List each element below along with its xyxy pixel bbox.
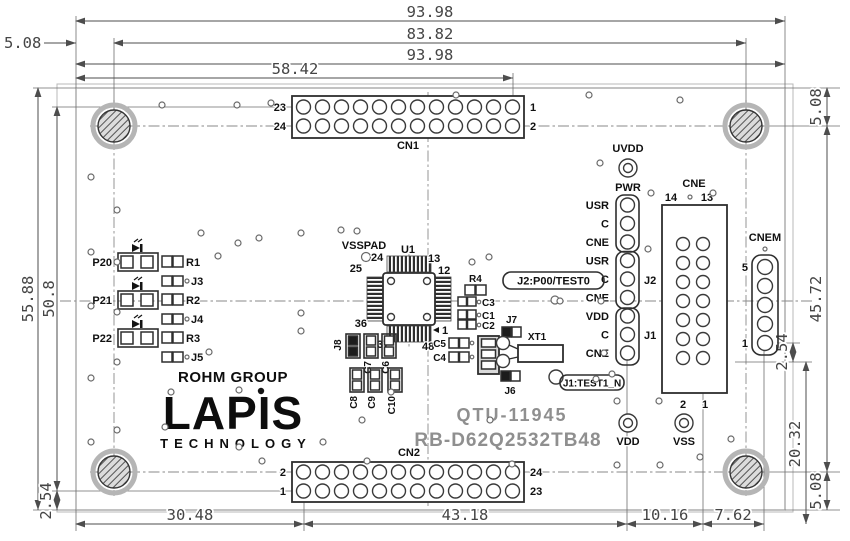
dim-right-bottom-offset: 5.08 (807, 472, 825, 509)
dim-right-top-offset: 5.08 (807, 88, 825, 125)
via-dot (88, 375, 94, 381)
connector-cn1: 23 24 1 2 CN1 (274, 96, 536, 152)
vss-label: VSS (673, 436, 695, 448)
pwr-pins (621, 198, 635, 360)
pin-circle (758, 260, 773, 275)
via-dot (268, 100, 274, 106)
dim-left-pitch: 2.54 (37, 482, 55, 519)
pin-circle (430, 484, 444, 498)
via-dot (710, 190, 716, 196)
pin-circle (297, 484, 311, 498)
pin-circle (621, 309, 635, 323)
u1-pin1-label: 1 (442, 325, 448, 337)
pin-circle (316, 100, 330, 114)
via-dot (320, 439, 326, 445)
via-dot (162, 424, 168, 430)
jumper-row-j4: J4 (162, 314, 204, 326)
via-dot (256, 235, 262, 241)
j8-label: J8 (333, 339, 344, 351)
cne-pin14-label: 14 (665, 192, 678, 204)
u1-pin12-label: 12 (438, 265, 450, 277)
dim-bottom-0: 30.48 (167, 506, 214, 524)
pin-circle (354, 119, 368, 133)
pin-circle (449, 100, 463, 114)
lapis-i-dot (258, 388, 264, 394)
pin-circle (411, 100, 425, 114)
pin-circle (335, 465, 349, 479)
u1-pins-top (387, 256, 431, 272)
led-row-p22: P22 R3 (92, 315, 200, 347)
pin-circle (392, 484, 406, 498)
cne-pin2-label: 2 (680, 399, 686, 411)
pin-circle (468, 100, 482, 114)
led-p20-label: P20 (92, 257, 112, 269)
led-resistor-block: P20 R1 J3 P21 R2 J4 P22 (92, 239, 204, 364)
led-p21-label: P21 (92, 295, 112, 307)
c2-label: C2 (482, 321, 495, 332)
u1-vsspad-label: VSSPAD (342, 240, 386, 252)
via-dot (114, 207, 120, 213)
pin-circle (392, 119, 406, 133)
via-dot (236, 444, 242, 450)
pin-circle (677, 295, 690, 308)
via-dot (469, 259, 475, 265)
pin-circle (677, 238, 690, 251)
via-dot (88, 439, 94, 445)
pin-circle (621, 346, 635, 360)
pin-circle (677, 276, 690, 289)
led-row-p20: P20 R1 (92, 239, 200, 271)
pin-circle (487, 484, 501, 498)
resistor-r2-label: R2 (186, 295, 200, 307)
via-dot (677, 97, 683, 103)
cn2-pin1-label: 1 (280, 486, 286, 498)
pin-circle (392, 100, 406, 114)
via-dot (215, 253, 221, 259)
cn1-pin23-label: 23 (274, 102, 286, 114)
via-dot (114, 259, 120, 265)
xt1-body (518, 345, 563, 362)
cne-refdes: CNE (682, 178, 705, 190)
dim-top-left-offset: 5.08 (4, 34, 41, 52)
board-model-text: QTU-11945 (456, 405, 567, 425)
pin-circle (621, 198, 635, 212)
connector-cn2: 2 1 24 23 CN2 (280, 447, 543, 502)
cn1-pin24-label: 24 (274, 121, 287, 133)
pin-circle (468, 465, 482, 479)
pin-circle (621, 235, 635, 249)
j2-callout-text: J2:P00/TEST0 (517, 276, 590, 288)
via-dot (697, 454, 703, 460)
dim-bottom-3: 7.62 (714, 506, 751, 524)
via-dot (648, 190, 654, 196)
pin-circle (758, 298, 773, 313)
pin-circle (487, 465, 501, 479)
pin-circle (335, 100, 349, 114)
j1-callout-text: J1:TEST1_N (563, 379, 621, 390)
u1-pins-right (435, 277, 451, 321)
dim-top-holes: 83.82 (407, 25, 454, 43)
via-dot (206, 349, 212, 355)
pin-circle (758, 279, 773, 294)
lapis-logo: LAPIS (163, 387, 303, 439)
cn2-pin24-label: 24 (530, 467, 543, 479)
via-dot (114, 309, 120, 315)
board-name-text: RB-D62Q2532TB48 (414, 430, 601, 451)
resistor-r3-label: R3 (186, 333, 200, 345)
testpad (549, 370, 563, 384)
u1-pin13-label: 13 (428, 253, 440, 265)
pcb-dimension-drawing: 93.98 5.08 83.82 93.98 58.42 30.48 43.18… (0, 0, 850, 541)
pin-circle (392, 465, 406, 479)
silkscreen-titles: QTU-11945 RB-D62Q2532TB48 (414, 405, 601, 451)
pin-circle (697, 238, 710, 251)
jumper-row-j5: J5 (162, 352, 203, 364)
pin-circle (316, 465, 330, 479)
pin-circle (354, 465, 368, 479)
c10-label: C10 (387, 396, 398, 415)
via-dot (557, 298, 563, 304)
pin-circle (677, 333, 690, 346)
c4-label: C4 (433, 353, 446, 364)
pin-circle (430, 119, 444, 133)
via-dot (359, 417, 365, 423)
via-dot (388, 389, 394, 395)
pin-circle (758, 336, 773, 351)
via-dot (198, 230, 204, 236)
jumper-row-j3: J3 (162, 276, 203, 288)
via-dot (453, 92, 459, 98)
cn1-pin2-label: 2 (530, 121, 536, 133)
pin-circle (449, 119, 463, 133)
cne-pin1-label: 1 (702, 399, 708, 411)
via-dot (88, 174, 94, 180)
pin-circle (697, 295, 710, 308)
cnem-pin5-label: 5 (742, 262, 748, 274)
pin-circle (373, 465, 387, 479)
xt1-label: XT1 (528, 332, 547, 343)
pin-circle (621, 291, 635, 305)
u1-pin25-label: 25 (350, 263, 362, 275)
j1-refdes: J1 (644, 330, 656, 342)
mounting-hole-bottom-left (93, 451, 135, 493)
jumper-j4-label: J4 (191, 314, 204, 326)
via-dot (168, 389, 174, 395)
cn2-pin23-label: 23 (530, 486, 542, 498)
pin-circle (468, 484, 482, 498)
via-dot (88, 249, 94, 255)
cn1-pin1-label: 1 (530, 102, 536, 114)
connector-cne: CNE 14 13 2 1 (662, 178, 727, 411)
dim-top-full-2: 93.98 (407, 46, 454, 64)
dim-right-cne-span: 20.32 (786, 421, 804, 468)
j2-refdes: J2 (644, 275, 656, 287)
pin-circle (373, 119, 387, 133)
pin-circle (354, 100, 368, 114)
pin-circle (677, 352, 690, 365)
mounting-hole-bottom-right (725, 451, 767, 493)
pwr-pin-label-1-usr: USR (586, 200, 609, 212)
jumper-j3-label: J3 (191, 276, 203, 288)
via-dot (234, 102, 240, 108)
led-row-p21: P21 R2 (92, 277, 200, 309)
via-dot (586, 92, 592, 98)
pin-circle (697, 276, 710, 289)
u1-pins-left (367, 277, 383, 321)
drawing-canvas: 93.98 5.08 83.82 93.98 58.42 30.48 43.18… (0, 0, 850, 541)
pin-circle (373, 484, 387, 498)
pin-circle (677, 314, 690, 327)
pin-circle (354, 484, 368, 498)
dim-bottom-1: 43.18 (442, 506, 489, 524)
via-dot (487, 417, 493, 423)
via-dot (236, 387, 242, 393)
dim-right-holes-span: 45.72 (807, 276, 825, 323)
r4-label: R4 (469, 274, 482, 285)
cn2-pin2-label: 2 (280, 467, 286, 479)
pwr-pin-label-7-vdd: VDD (586, 311, 609, 323)
via-dot (645, 246, 651, 252)
pin-circle (411, 465, 425, 479)
pin-circle (621, 254, 635, 268)
pin-circle (430, 465, 444, 479)
pin-circle (316, 119, 330, 133)
pwr-pin-label-3-cne: CNE (586, 237, 609, 249)
led-p22-label: P22 (92, 333, 112, 345)
pin-circle (697, 314, 710, 327)
via-dot (598, 298, 604, 304)
dim-top-cn1: 58.42 (272, 60, 319, 78)
c9-label: C9 (367, 396, 378, 409)
via-dot (259, 458, 265, 464)
pwr-pin-label-6-cne: CNE (586, 293, 609, 305)
u1-refdes: U1 (401, 244, 415, 256)
uvdd-label: UVDD (612, 143, 643, 155)
pin-circle (506, 484, 520, 498)
via-dot (614, 462, 620, 468)
dim-left-height: 55.88 (19, 276, 37, 323)
c8-label: C8 (349, 396, 360, 409)
xt1-pad-1 (497, 337, 510, 350)
pin-circle (621, 272, 635, 286)
cn1-refdes: CN1 (397, 140, 419, 152)
cnem-pins (758, 260, 773, 351)
via-dot (159, 102, 165, 108)
led-symbol (132, 320, 140, 328)
resistor-r1-label: R1 (186, 257, 200, 269)
via-dot (597, 160, 603, 166)
c3-label: C3 (482, 298, 495, 309)
led-symbol (132, 244, 140, 252)
pin-circle (297, 119, 311, 133)
pin-circle (297, 100, 311, 114)
via-dot (338, 227, 344, 233)
u1-pin1-arrow (433, 327, 439, 333)
via-dot (364, 458, 370, 464)
via-dot (88, 303, 94, 309)
u1-pin24-label: 24 (371, 252, 384, 264)
via-dot (509, 461, 515, 467)
pin-circle (487, 100, 501, 114)
pin-circle (468, 119, 482, 133)
dim-bottom-2: 10.16 (642, 506, 689, 524)
u1-vsspad-via (362, 253, 371, 262)
pin-circle (411, 484, 425, 498)
pin-circle (621, 328, 635, 342)
via-dot (298, 328, 304, 334)
via-dot (298, 230, 304, 236)
via-dot (114, 427, 120, 433)
via-dot (609, 371, 615, 377)
xt1-pad-2 (497, 355, 510, 368)
via-dot (235, 240, 241, 246)
led-symbol (132, 282, 140, 290)
pwr-pin-label-8-c: C (601, 330, 609, 342)
pin-circle (506, 100, 520, 114)
via-dot (298, 310, 304, 316)
j7-label: J7 (506, 315, 518, 326)
dim-left-rows: 50.8 (40, 280, 58, 317)
pin-circle (411, 119, 425, 133)
pin-circle (506, 119, 520, 133)
c5-label: C5 (433, 339, 446, 350)
pin-circle (335, 119, 349, 133)
pin-circle (449, 484, 463, 498)
via-dot (657, 462, 663, 468)
via-dot (656, 398, 662, 404)
pin-circle (430, 100, 444, 114)
cnem-pin1-label: 1 (742, 338, 748, 350)
pin-circle (677, 257, 690, 270)
via-dot (486, 254, 492, 260)
pin-circle (697, 257, 710, 270)
pin-circle (297, 465, 311, 479)
pin-circle (373, 100, 387, 114)
pwr-pin-label-2-c: C (601, 219, 609, 231)
pwr-label: PWR (615, 182, 641, 194)
pin-circle (621, 217, 635, 231)
u1-pin36-label: 36 (355, 318, 367, 330)
mounting-hole-top-right (725, 105, 767, 147)
via-dot (601, 350, 607, 356)
pin-circle (316, 484, 330, 498)
mounting-hole-top-left (93, 105, 135, 147)
logo-block: ROHM GROUP LAPIS TECHNOLOGY (160, 369, 312, 451)
via-dot (354, 228, 360, 234)
dim-top-full-1: 93.98 (407, 3, 454, 21)
pin-circle (335, 484, 349, 498)
rohm-group-logo: ROHM GROUP (178, 369, 288, 386)
pwr-pin-label-4-usr: USR (586, 256, 609, 268)
pin-circle (487, 119, 501, 133)
pin-circle (758, 317, 773, 332)
via-dot (593, 376, 599, 382)
pin-circle (449, 465, 463, 479)
via-dot (614, 398, 620, 404)
cne-body (662, 205, 727, 393)
j6-label: J6 (504, 386, 516, 397)
via-dot (114, 359, 120, 365)
vdd-label: VDD (616, 436, 639, 448)
cnem-refdes: CNEM (749, 232, 781, 244)
pin-circle (697, 333, 710, 346)
via-dot (728, 436, 734, 442)
pin-circle (697, 352, 710, 365)
jumper-j5-label: J5 (191, 352, 203, 364)
